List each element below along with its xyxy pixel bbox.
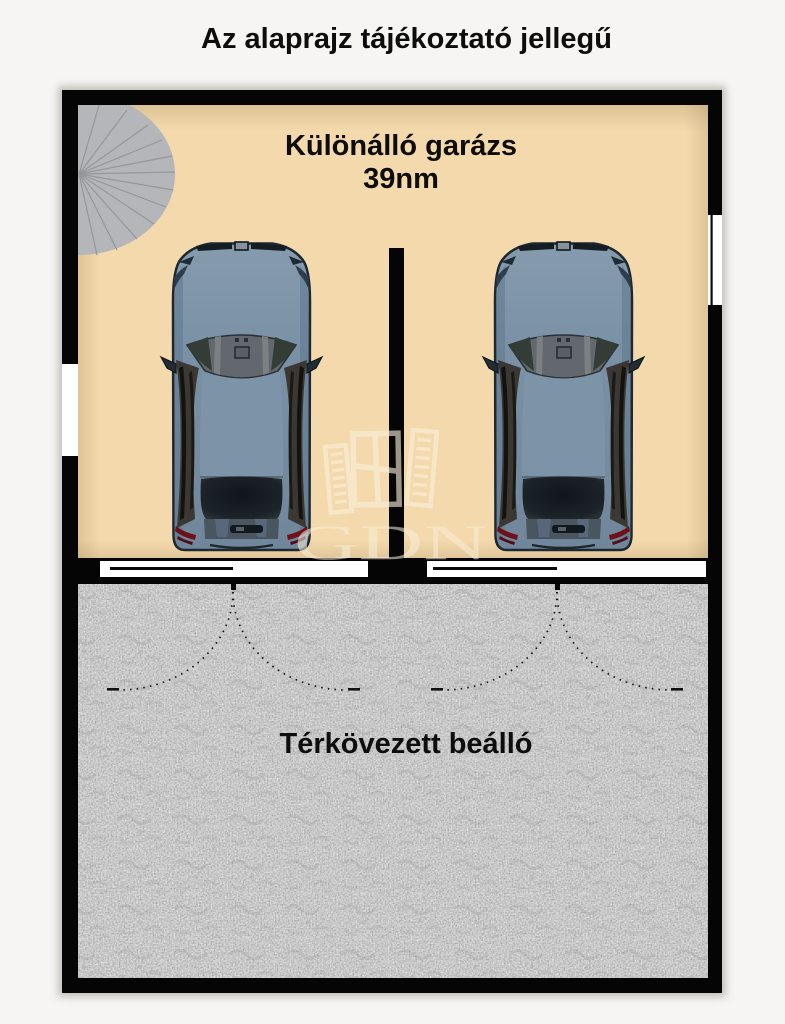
- svg-text:Különálló garázs: Különálló garázs: [285, 130, 517, 162]
- svg-text:Térkövezett beálló: Térkövezett beálló: [279, 728, 532, 760]
- svg-text:GDN: GDN: [294, 514, 488, 570]
- svg-text:39nm: 39nm: [363, 163, 439, 195]
